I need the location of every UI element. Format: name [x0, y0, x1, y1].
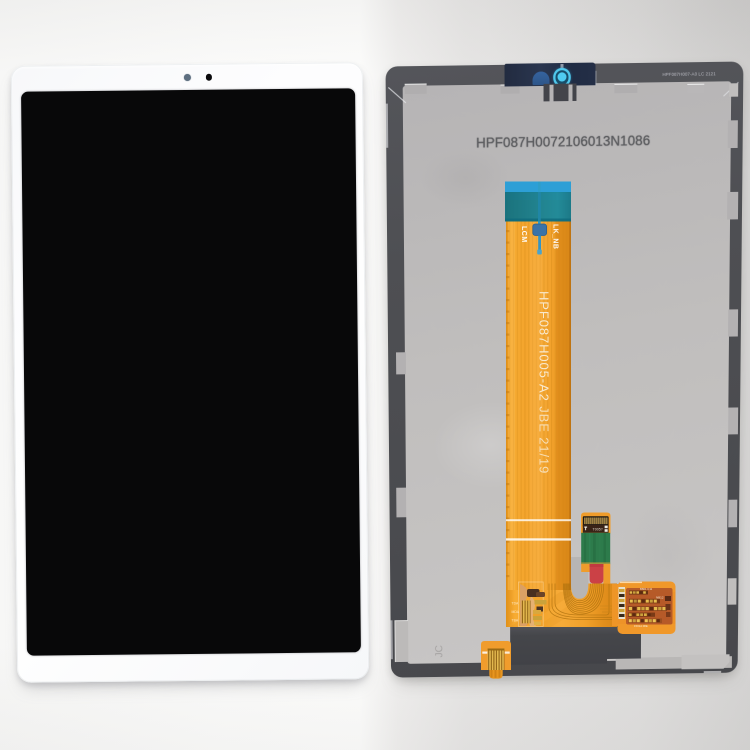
svg-text:LK_NB: LK_NB — [552, 224, 559, 249]
svg-text:B801 C11: B801 C11 — [640, 587, 653, 591]
svg-text:MDA: MDA — [512, 610, 520, 614]
svg-text:LCM: LCM — [520, 226, 527, 243]
svg-text:TBA: TBA — [512, 618, 519, 622]
svg-text:TDA: TDA — [512, 602, 520, 606]
svg-text:T005?: T005? — [593, 528, 603, 532]
svg-text:1501A 08E: 1501A 08E — [634, 624, 648, 628]
svg-text:HPF087H005-A2 JBE 21/19: HPF087H005-A2 JBE 21/19 — [537, 291, 552, 474]
svg-text:NB12: NB12 — [656, 596, 664, 600]
